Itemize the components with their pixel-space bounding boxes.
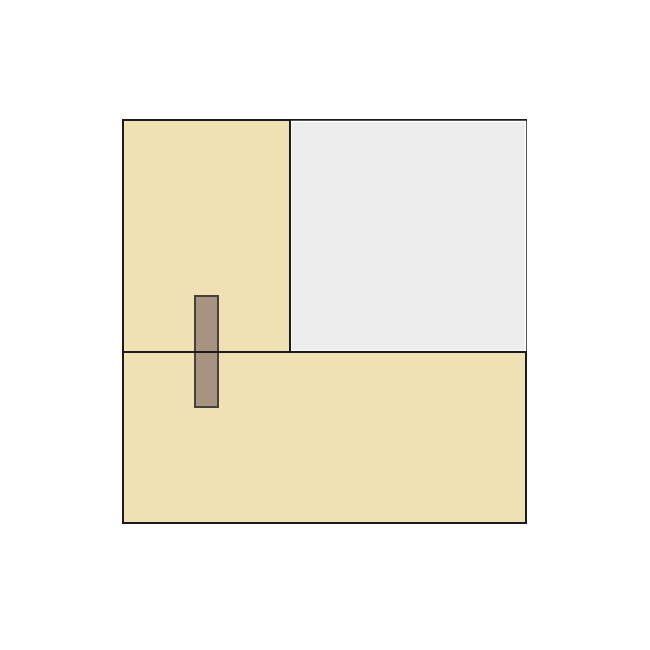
- gray-panel-top-right: [291, 122, 526, 352]
- layout-diagram: [0, 0, 650, 650]
- figure-canvas: [0, 0, 650, 650]
